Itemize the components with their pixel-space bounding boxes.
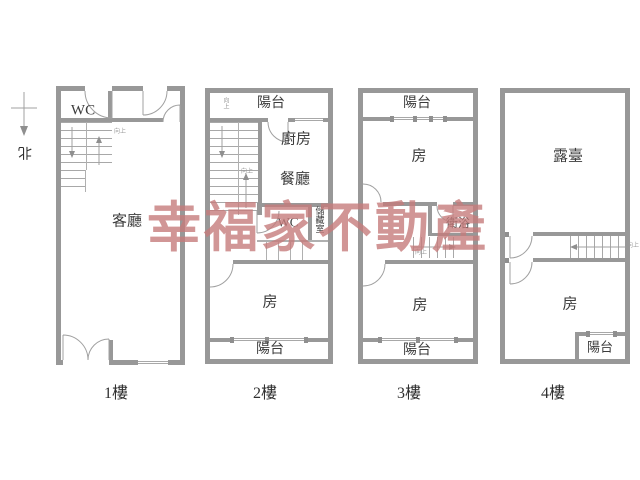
room-label-balcony-bottom: 陽台 [256, 343, 284, 357]
floor-label-1f: 1樓 [104, 379, 128, 403]
room-label-balcony4: 陽台 [587, 341, 613, 354]
stairs-up-note: 向上 [627, 243, 639, 249]
north-arrow-glyph [8, 88, 42, 136]
room-label-wc: WC [71, 104, 95, 119]
floor-label-4f: 4樓 [541, 379, 565, 403]
room-label-balcony-top: 陽台 [403, 97, 431, 111]
watermark: 幸福家不動產 [147, 201, 489, 255]
room-label-balcony-bottom: 陽台 [403, 344, 431, 358]
floor-plan-4: 露臺 房 陽台 向上 [500, 88, 630, 364]
room-label-kitchen: 廚房 [281, 133, 311, 148]
north-arrow-icon: 北 [8, 88, 42, 163]
plan4-linework [505, 93, 625, 359]
room-label-room2: 房 [262, 296, 277, 311]
stairs-up-note: 向上 [114, 129, 126, 135]
north-label: 北 [8, 143, 42, 163]
window [138, 361, 168, 364]
room-label-room-front: 房 [411, 150, 426, 165]
room-label-balcony-top: 陽台 [257, 97, 285, 111]
door-opening [63, 360, 109, 365]
stairs-up-note: 向上 [241, 169, 253, 175]
stairs-up-note: 向上 [222, 97, 228, 109]
room-label-room4: 房 [562, 298, 577, 313]
room-label-living-room: 客廳 [112, 215, 142, 230]
floor-label-2f: 2樓 [253, 379, 277, 403]
floor-label-3f: 3樓 [397, 379, 421, 403]
room-label-dining: 餐廳 [280, 173, 310, 188]
floor-plan-sheet: 北 WC 客廳 向上 1樓 [0, 0, 640, 480]
room-label-room-back: 房 [412, 299, 427, 314]
room-label-terrace: 露臺 [553, 150, 583, 165]
